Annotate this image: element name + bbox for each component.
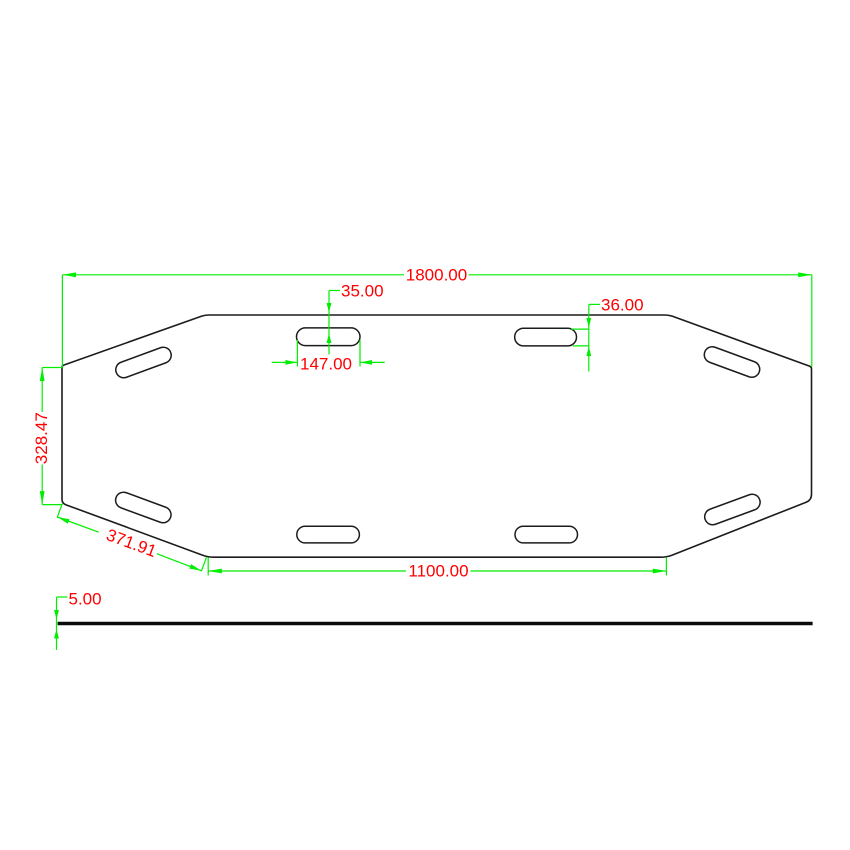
svg-text:1100.00: 1100.00 <box>408 562 468 581</box>
svg-text:5.00: 5.00 <box>69 590 102 609</box>
svg-text:147.00: 147.00 <box>300 355 352 374</box>
svg-text:1800.00: 1800.00 <box>406 266 467 285</box>
svg-text:371.91: 371.91 <box>104 525 159 561</box>
svg-text:328.47: 328.47 <box>32 412 51 464</box>
svg-text:36.00: 36.00 <box>601 296 644 315</box>
svg-text:35.00: 35.00 <box>341 282 384 301</box>
